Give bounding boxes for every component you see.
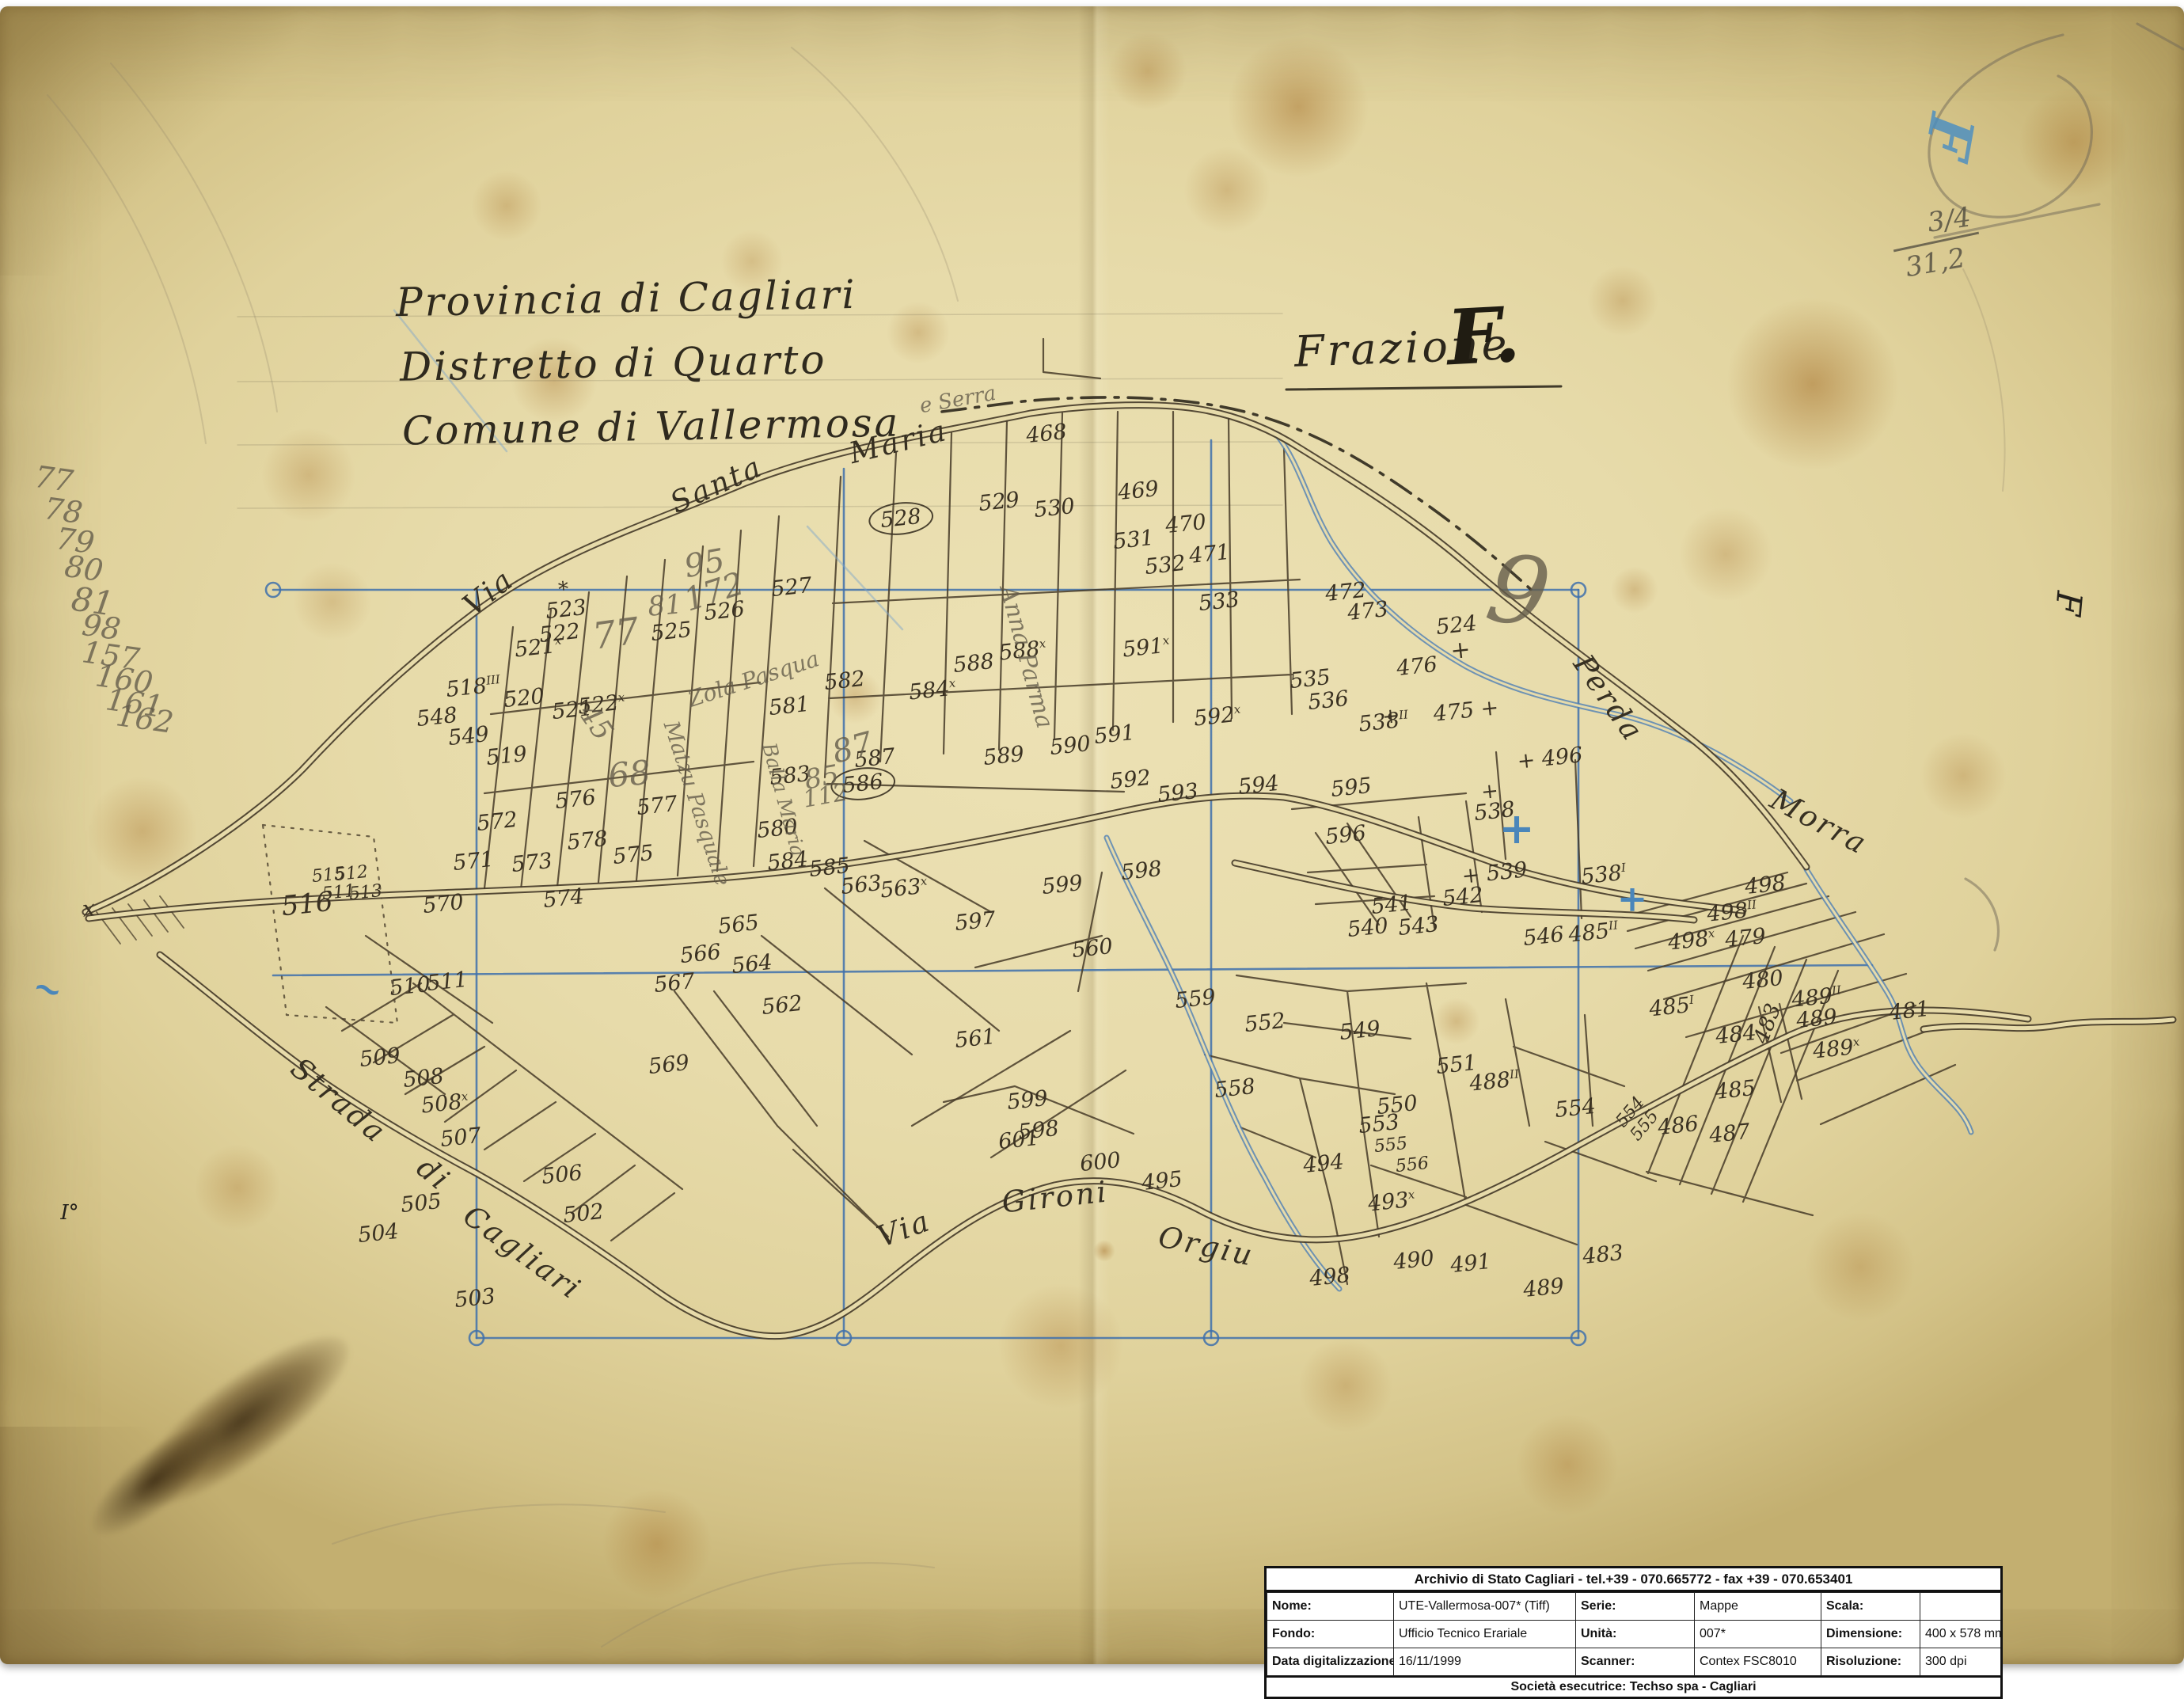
parcel-label: 564: [731, 952, 773, 977]
parcel-label: 476: [1396, 654, 1438, 679]
field-label: Unità:: [1576, 1621, 1695, 1648]
parcel-label: 532: [1144, 553, 1187, 578]
parcel-label: 590: [1049, 733, 1092, 758]
parcel-label: 470: [1164, 511, 1207, 537]
scanned-map-page: { "title_block": { "line1": "Provincia d…: [0, 0, 2184, 1693]
parcel-label: 589: [982, 743, 1025, 769]
parcel-label: 565: [717, 912, 760, 937]
parcel-label: 481: [1888, 998, 1931, 1024]
parcel-label: 504: [357, 1221, 400, 1246]
parcel-label: 584x: [908, 677, 957, 703]
parcel-label: 561: [954, 1026, 997, 1051]
parcel-label: 559: [1174, 986, 1217, 1012]
frazione-letter: F.: [1445, 290, 1522, 383]
parcel-label: 591x: [1122, 634, 1171, 660]
parcel-label: 549: [447, 724, 490, 749]
field-value: 400 x 578 mm.: [1920, 1621, 2001, 1648]
parcel-label: 562: [761, 993, 803, 1018]
field-label: Scanner:: [1576, 1648, 1695, 1676]
parcel-label: 576: [554, 787, 597, 812]
map-title-line3: Comune di Vallermosa: [402, 400, 901, 454]
parcel-label: +: [1449, 638, 1472, 663]
parcel-label: 542: [1441, 884, 1484, 910]
map-title-line1: Provincia di Cagliari: [396, 272, 857, 325]
parcel-label: 530: [1033, 496, 1076, 521]
field-value: Mappe: [1695, 1593, 1821, 1621]
parcel-label: 566: [679, 941, 722, 967]
parcel-label: 595: [1330, 775, 1373, 800]
parcel-label: 469: [1117, 478, 1160, 504]
parcel-label: 588: [952, 651, 995, 676]
parcel-label: 571: [452, 849, 495, 874]
parcel-label: 485: [1714, 1078, 1757, 1103]
archive-info-table: Archivio di Stato Cagliari - tel.+39 - 0…: [1264, 1566, 2003, 1699]
field-label: Data digitalizzazione:: [1267, 1648, 1394, 1676]
parcel-label: 567: [653, 971, 696, 996]
parcel-label: 560: [1071, 936, 1114, 961]
parcel-label: 555: [1373, 1135, 1408, 1156]
parcel-label: 511: [321, 883, 356, 903]
parcel-label: 598: [1017, 1118, 1060, 1143]
parcel-label: + 496: [1516, 744, 1583, 773]
parcel-label: 554: [1554, 1096, 1597, 1121]
parcel-label: 489x: [1812, 1036, 1861, 1062]
parcel-label: 582: [823, 668, 866, 694]
parcel-label: 569: [648, 1052, 690, 1078]
parcel-label: 575: [612, 842, 655, 868]
parcel-label: 577: [636, 793, 678, 819]
pencil-note: 68: [607, 756, 652, 792]
parcel-label: x: [82, 897, 97, 920]
parcel-label: 507: [439, 1125, 482, 1150]
parcel-label: 592: [1109, 767, 1152, 792]
margin-mark: I°: [60, 1203, 78, 1223]
parcel-label: 508: [402, 1066, 445, 1091]
parcel-label: 485I: [1648, 994, 1696, 1021]
parcel-label: 525: [650, 619, 693, 644]
margin-mark: +: [1617, 880, 1648, 917]
archive-footer: Società esecutrice: Techso spa - Cagliar…: [1267, 1676, 2000, 1697]
parcel-label: 506: [541, 1162, 583, 1188]
parcel-label: 483: [1582, 1242, 1624, 1268]
parcel-label: 503: [454, 1286, 496, 1311]
margin-mark: F: [2049, 590, 2086, 617]
table-row: Fondo: Ufficio Tecnico Erariale Unità: 0…: [1267, 1621, 2001, 1648]
field-label: Risoluzione:: [1821, 1648, 1920, 1676]
parcel-label: 533: [1198, 589, 1240, 614]
parcel-label: +: [1480, 781, 1499, 803]
parcel-label: 543: [1397, 914, 1440, 939]
field-label: Dimensione:: [1821, 1621, 1920, 1648]
parcel-label: 498x: [1667, 927, 1716, 953]
parcel-label: 484: [1715, 1022, 1757, 1047]
parcel-label: *: [557, 579, 570, 600]
parcel-label: 519: [485, 743, 528, 769]
parcel-label: 558: [1214, 1076, 1256, 1101]
pencil-note: 77: [591, 612, 641, 655]
field-value: Ufficio Tecnico Erariale: [1394, 1621, 1576, 1648]
parcel-label: 487: [1708, 1121, 1751, 1146]
parcel-label: 489: [1522, 1275, 1565, 1301]
parcel-label: 498: [1309, 1264, 1351, 1290]
parcel-label: 502: [562, 1201, 605, 1226]
parcel-label: 471: [1188, 542, 1231, 567]
table-row: Nome: UTE-Vallermosa-007* (Tiff) Serie: …: [1267, 1593, 2001, 1621]
field-value: 007*: [1695, 1621, 1821, 1648]
parcel-label: 600: [1079, 1150, 1122, 1175]
parcel-label: 489: [1795, 1006, 1838, 1032]
parcel-label: 540: [1346, 915, 1389, 941]
archive-fields: Nome: UTE-Vallermosa-007* (Tiff) Serie: …: [1267, 1592, 2001, 1676]
parcel-label: 473: [1346, 599, 1389, 624]
parcel-label: 510: [389, 974, 431, 999]
parcel-label: 524: [1435, 613, 1478, 638]
parcel-label: 553: [1358, 1112, 1400, 1137]
parcel-label: 596: [1324, 823, 1367, 848]
parcel-label: 556: [1395, 1155, 1430, 1176]
field-value: [1920, 1593, 2001, 1621]
parcel-label: 593: [1157, 781, 1199, 806]
field-value: 16/11/1999: [1394, 1648, 1576, 1676]
parcel-label: +: [1381, 705, 1400, 728]
parcel-label: 574: [542, 886, 585, 911]
map-title-line2: Distretto di Quarto: [400, 336, 827, 390]
parcel-label: 495: [1141, 1169, 1183, 1194]
parcel-label: 581: [768, 694, 811, 719]
parcel-label: 592x: [1193, 703, 1242, 729]
parcel-label: 531: [1112, 527, 1155, 553]
parcel-label: 511: [426, 969, 469, 994]
parcel-label: 480: [1742, 967, 1784, 993]
parcel-label: 597: [954, 909, 997, 934]
parcel-label: 578: [566, 828, 609, 853]
parcel-label: 490: [1392, 1248, 1435, 1273]
parcel-label: 491: [1449, 1251, 1492, 1276]
parcel-label: 498: [1744, 872, 1787, 898]
pencil-flourish: [1929, 24, 2183, 950]
table-row: Data digitalizzazione: 16/11/1999 Scanne…: [1267, 1648, 2001, 1676]
field-value: Contex FSC8010: [1695, 1648, 1821, 1676]
margin-mark: +: [1498, 807, 1534, 849]
parcel-label: 591: [1093, 722, 1136, 747]
parcel-label: 546: [1522, 924, 1565, 949]
parcel-label: 494: [1302, 1151, 1345, 1176]
parcel-label: 508x: [420, 1090, 469, 1116]
parcel-label: 549: [1339, 1018, 1381, 1043]
parcel-label: 527: [770, 575, 813, 600]
parcel-label: 520: [503, 686, 545, 711]
parcel-label: 552: [1244, 1010, 1286, 1036]
parcel-label: 468: [1025, 421, 1068, 447]
parcel-label: 493x: [1367, 1188, 1416, 1214]
field-value: 300 dpi: [1920, 1648, 2001, 1676]
pencil-note: 81: [647, 591, 683, 621]
parcel-label: 573: [511, 850, 553, 876]
parcel-label: 475 +: [1432, 697, 1499, 725]
parcel-label: 599: [1006, 1088, 1049, 1113]
field-label: Nome:: [1267, 1593, 1394, 1621]
parcel-label: 536: [1307, 688, 1350, 713]
parcel-label: 598: [1120, 858, 1163, 884]
fraction-numerator: 3/4: [1925, 201, 1973, 238]
pencil-note: 162: [114, 700, 175, 738]
field-label: Scala:: [1821, 1593, 1920, 1621]
parcel-label: 563: [840, 872, 883, 898]
field-label: Fondo:: [1267, 1621, 1394, 1648]
field-value: UTE-Vallermosa-007* (Tiff): [1394, 1593, 1576, 1621]
parcel-label: 486: [1657, 1113, 1700, 1138]
parcel-label: 479: [1724, 926, 1767, 951]
archive-header: Archivio di Stato Cagliari - tel.+39 - 0…: [1267, 1568, 2000, 1592]
parcel-label: 570: [422, 891, 465, 917]
parcel-label: 529: [978, 489, 1020, 515]
parcel-label: 521x: [514, 634, 563, 660]
field-label: Serie:: [1576, 1593, 1695, 1621]
parcel-label: 594: [1237, 773, 1280, 798]
parcel-label: 599: [1041, 872, 1084, 898]
parcel-label: 563x: [879, 875, 929, 901]
parcel-label: 572: [476, 809, 518, 834]
parcel-label: 509: [359, 1045, 401, 1070]
